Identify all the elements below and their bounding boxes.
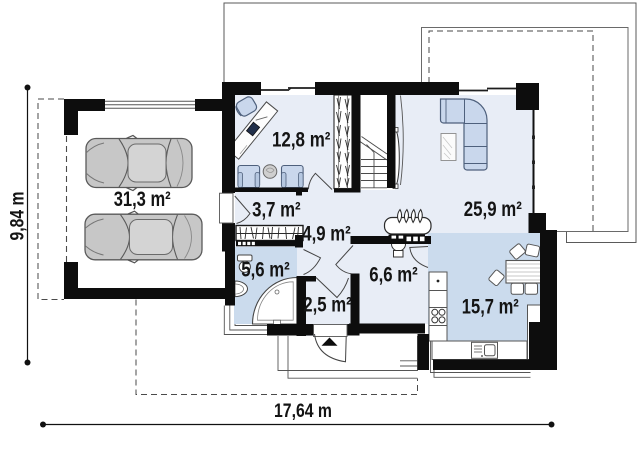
svg-text:2,5 m²: 2,5 m²: [303, 294, 352, 317]
svg-text:12,8 m²: 12,8 m²: [272, 129, 331, 152]
svg-text:31,3 m²: 31,3 m²: [114, 188, 171, 211]
svg-text:25,9 m²: 25,9 m²: [464, 198, 522, 221]
svg-text:3,7 m²: 3,7 m²: [252, 198, 301, 221]
svg-text:6,6 m²: 6,6 m²: [369, 264, 418, 287]
svg-text:9,84 m: 9,84 m: [8, 192, 29, 241]
svg-text:17,64 m: 17,64 m: [274, 401, 332, 422]
svg-text:5,6 m²: 5,6 m²: [241, 259, 290, 282]
svg-text:4,9 m²: 4,9 m²: [302, 223, 351, 246]
svg-text:15,7 m²: 15,7 m²: [462, 296, 519, 319]
